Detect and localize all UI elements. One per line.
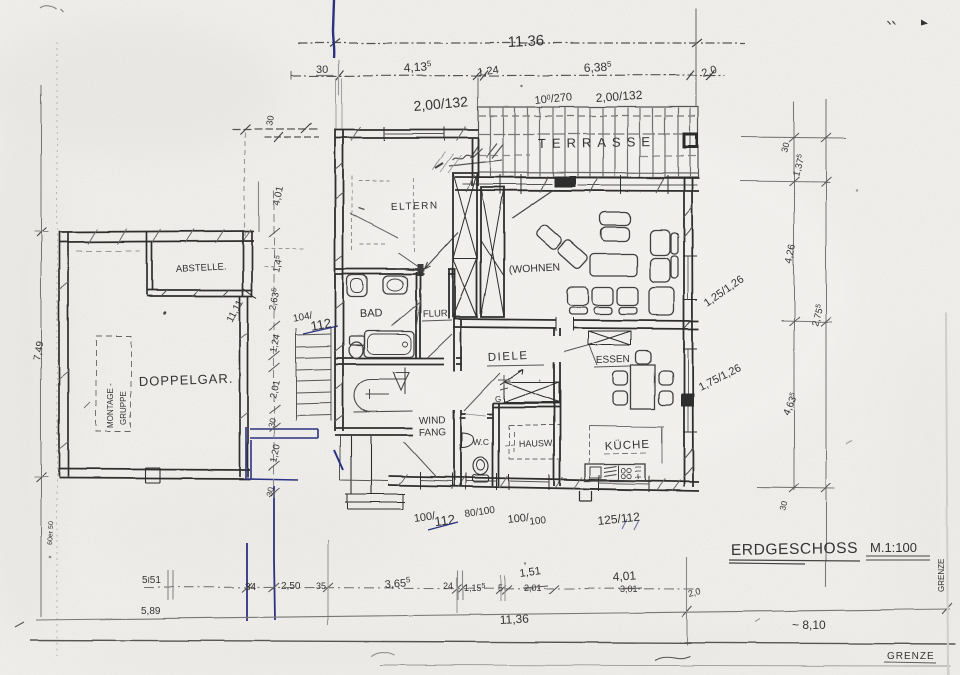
svg-text:60er 50: 60er 50	[47, 521, 55, 545]
svg-text:30: 30	[264, 115, 276, 127]
svg-text:M.1:100: M.1:100	[870, 540, 917, 555]
svg-text:ERDGESCHOSS: ERDGESCHOSS	[731, 540, 858, 559]
svg-text:11,36: 11,36	[499, 611, 529, 627]
svg-text:TERRASSE: TERRASSE	[538, 134, 656, 151]
svg-text:GRENZE: GRENZE	[937, 559, 946, 592]
svg-text:~ 8,10: ~ 8,10	[792, 618, 826, 632]
svg-text:5,89: 5,89	[141, 606, 161, 617]
svg-text:HAUSW.: HAUSW.	[519, 438, 555, 449]
svg-text:GRUPPE: GRUPPE	[119, 391, 128, 425]
svg-text:11.36: 11.36	[507, 32, 544, 51]
svg-text:35: 35	[316, 581, 326, 591]
svg-text:112: 112	[433, 511, 456, 529]
svg-text:2,50: 2,50	[281, 581, 301, 592]
svg-text:KÜCHE: KÜCHE	[605, 439, 651, 453]
svg-text:WIND: WIND	[419, 415, 446, 427]
svg-text:FLUR: FLUR	[423, 308, 448, 320]
svg-text:30: 30	[316, 64, 328, 76]
svg-text:5I51: 5I51	[142, 575, 161, 586]
svg-text:4,01: 4,01	[612, 568, 637, 584]
svg-text:ESSEN: ESSEN	[596, 354, 630, 366]
svg-text:GRENZE: GRENZE	[887, 651, 935, 662]
svg-text:G: G	[495, 395, 501, 404]
svg-text:W.C: W.C	[473, 437, 489, 447]
svg-text:5: 5	[498, 583, 503, 593]
svg-text:BAD: BAD	[360, 307, 383, 320]
svg-text:24: 24	[443, 581, 453, 591]
svg-text:ELTERN: ELTERN	[391, 200, 439, 213]
svg-text:34: 34	[245, 582, 257, 593]
svg-text:DIELE: DIELE	[488, 350, 529, 364]
svg-text:FANG: FANG	[419, 427, 447, 439]
svg-text:MONTAGE -: MONTAGE -	[106, 383, 115, 428]
